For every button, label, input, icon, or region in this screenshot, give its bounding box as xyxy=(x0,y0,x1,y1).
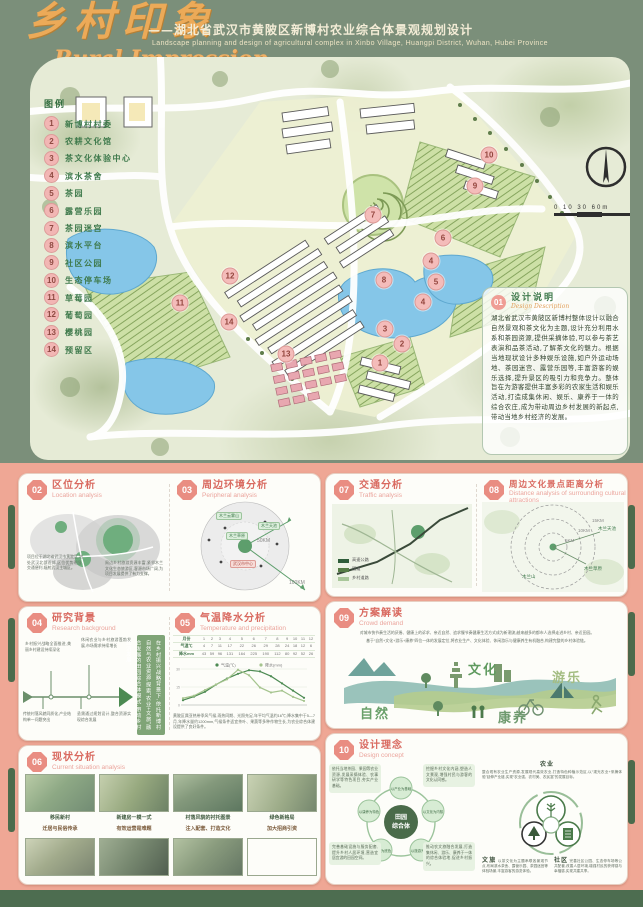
distance-header: 08 周边文化景点距离分析 Distance analysis of surro… xyxy=(484,480,627,504)
svg-text:15: 15 xyxy=(176,686,180,690)
panel-divider xyxy=(476,484,477,586)
design-description-title-en: Design Description xyxy=(511,304,569,310)
site-photo xyxy=(247,774,317,812)
photo-caption: 移民新村 xyxy=(25,815,95,821)
edge-decoration xyxy=(8,768,15,832)
map-marker: 6 xyxy=(435,230,452,247)
legend-item: 1 新博村村委 xyxy=(44,115,132,132)
svg-text:以文化为内核: 以文化为内核 xyxy=(423,809,444,814)
current-title-en: Current situation analysis xyxy=(52,765,125,772)
legend-item: 13 樱桃园 xyxy=(44,324,132,341)
legend-item-label: 滨水平台 xyxy=(65,241,103,249)
legend-item-label: 农耕文化馆 xyxy=(65,137,113,145)
poi-chip: 木兰天池 xyxy=(258,522,280,530)
current-title-cn: 现状分析 xyxy=(52,752,125,763)
site-photo xyxy=(173,838,243,876)
section-badge: 02 xyxy=(27,480,47,500)
demand-line1: 对城市快节奏生活的厌倦、健康上的诉求、亲近自然、追求慢节奏健康生活方式成为新潮流… xyxy=(346,630,608,636)
legend-item: 7 茶园迷宫 xyxy=(44,219,132,236)
legend-number-badge: 7 xyxy=(44,221,59,236)
peripheral-title-en: Peripheral analysis xyxy=(202,493,268,500)
research-title-en: Research background xyxy=(52,626,116,633)
panel-divider xyxy=(169,484,170,591)
peripheral-header: 03 周边环境分析 Peripheral analysis xyxy=(177,480,268,500)
legend-item-label: 茶园迷宫 xyxy=(65,224,103,232)
panel-divider xyxy=(169,617,170,730)
poi-chip: 木兰草原 xyxy=(226,532,248,540)
legend-item-label: 葡萄园 xyxy=(65,311,94,319)
research-item: 乡村振兴战略全面推进,美丽乡村建设持续深化 xyxy=(25,641,71,652)
traffic-legend-item: 国道 xyxy=(338,565,369,574)
edge-decoration xyxy=(628,760,635,824)
map-marker: 14 xyxy=(221,314,238,331)
legend-number-badge: 12 xyxy=(44,307,59,322)
location-title-en: Location analysis xyxy=(52,493,102,500)
research-header: 04 研究背景 Research background xyxy=(27,613,116,633)
legend-item: 11 草莓园 xyxy=(44,289,132,306)
climate-table: 月份123456789101112气温℃47111722262928241812… xyxy=(173,635,315,658)
section-badge: 05 xyxy=(175,613,195,633)
compass xyxy=(582,143,630,196)
research-item: 传统村落风貌同质化,产业结构单一问题突出 xyxy=(23,711,71,722)
concept-title-cn: 设计理念 xyxy=(359,740,404,751)
poi-chip: 木兰云雾山 xyxy=(216,512,242,520)
location-text-a: 项目位于湖北省武汉市黄陂区,地处武汉北部近郊,区位优势明显,交通便利,辐射武汉主… xyxy=(27,554,83,571)
legend-number-badge: 9 xyxy=(44,255,59,270)
section-badge: 08 xyxy=(484,480,504,500)
edge-decoration xyxy=(628,612,635,676)
panel-traffic-distance: 07 交通分析 Traffic analysis 高速公路 xyxy=(325,473,628,597)
location-title-cn: 区位分析 xyxy=(52,480,102,491)
traffic-legend-label: 高速公路 xyxy=(352,558,369,562)
svg-text:降水(mm): 降水(mm) xyxy=(265,662,283,668)
legend-number-badge: 10 xyxy=(44,273,59,288)
legend-item: 6 露营乐园 xyxy=(44,202,132,219)
ring-label: 15KM xyxy=(592,518,604,523)
legend-item: 8 滨水平台 xyxy=(44,237,132,254)
poi-label: 木兰草原 xyxy=(584,565,602,572)
trefoil-top-label: 农业 xyxy=(540,762,554,768)
site-photo xyxy=(247,838,317,876)
map-marker: 8 xyxy=(376,272,393,289)
poster: 乡村印象 ——湖北省武汉市黄陂区新博村农业综合体景观规划设计 Landscape… xyxy=(0,0,643,907)
climate-note: 黄陂区属亚热带季风气候,雨热同期、光照充足,年平均气温约16℃;降水集中于5—7… xyxy=(173,713,315,730)
section-badge: 01 xyxy=(491,295,506,310)
panel-location-peripheral: 02 区位分析 Location analysis 项目位于湖北省武汉市黄陂区,… xyxy=(18,473,321,602)
legend-number-badge: 6 xyxy=(44,203,59,218)
ring-label-far: 100KM xyxy=(289,580,305,586)
section-badge: 07 xyxy=(334,480,354,500)
edge-decoration xyxy=(8,505,15,569)
traffic-title-en: Traffic analysis xyxy=(359,493,403,500)
legend-item-label: 露营乐园 xyxy=(65,207,103,215)
photo-caption: 迁居与民俗传承 xyxy=(25,826,95,832)
panel-research-climate: 04 研究背景 Research background 乡村振兴战略全面推进,美… xyxy=(18,606,321,741)
map-legend: 图例 1 新博村村委 2 农耕文化馆 3 茶文化体验中心 xyxy=(44,101,132,358)
concept-corner-text: 完善基础设施与服务配套,提升乡村人居环境,营造宜居宜游的田园空间。 xyxy=(329,842,381,865)
section-badge: 09 xyxy=(334,608,354,628)
legend-number-badge: 13 xyxy=(44,325,59,340)
north-arrow-icon xyxy=(582,143,630,191)
research-title-cn: 研究背景 xyxy=(52,613,116,624)
map-marker: 7 xyxy=(365,207,382,224)
legend-item: 10 生态停车场 xyxy=(44,272,132,289)
location-header: 02 区位分析 Location analysis xyxy=(27,480,102,500)
legend-number-badge: 3 xyxy=(44,151,59,166)
map-marker: 5 xyxy=(428,274,445,291)
legend-item-label: 生态停车场 xyxy=(65,276,113,284)
climate-header: 05 气温降水分析 Temperature and precipitation xyxy=(175,613,286,633)
legend-number-badge: 4 xyxy=(44,168,59,183)
climate-chart: 01530气温(℃)降水(mm) xyxy=(173,661,315,711)
trefoil-left-text: 文旅 以茶文化为主题串联各景观节点,布局滨水茶舍、露营乐园、茶园迷宫等体验场景,… xyxy=(482,858,548,875)
section-badge: 10 xyxy=(334,740,354,760)
traffic-title-cn: 交通分析 xyxy=(359,480,403,491)
legend-number-badge: 5 xyxy=(44,186,59,201)
legend-item-label: 茶园 xyxy=(65,189,84,197)
demand-label-culture: 文化 xyxy=(468,664,498,677)
svg-text:30: 30 xyxy=(176,668,180,672)
design-description-title-cn: 设计说明 xyxy=(511,294,569,303)
concept-corner-text: 推动农文旅融合发展,打造集休闲、游乐、康养于一体的综合体验地,促进乡村振兴。 xyxy=(423,842,475,871)
photo-caption: 注入配套、打造文化 xyxy=(173,826,243,832)
legend-item: 14 预留区 xyxy=(44,341,132,358)
photo-caption: 新建房一模一式 xyxy=(99,815,169,821)
legend-number-badge: 1 xyxy=(44,116,59,131)
panel-concept: 10 设计理念 Design concept 田园 综合体 以产业为基础 以文化… xyxy=(325,733,628,885)
legend-number-badge: 8 xyxy=(44,238,59,253)
site-photo xyxy=(99,838,169,876)
legend-item-label: 茶文化体验中心 xyxy=(65,154,132,162)
ring-label: 5KM xyxy=(565,538,575,543)
distance-title-cn: 周边文化景点距离分析 xyxy=(509,480,627,489)
map-marker: 3 xyxy=(377,321,394,338)
map-marker: 12 xyxy=(222,268,239,285)
legend-item-label: 樱桃园 xyxy=(65,328,94,336)
legend-item: 4 滨水茶舍 xyxy=(44,167,132,184)
research-item: 亟需通过规划设计,整合资源实现综合发展 xyxy=(77,711,131,722)
design-description-box: 01 设计说明 Design Description 湖北省武汉市黄陂区新博村整… xyxy=(482,287,628,455)
photo-caption: 有效运营是难题 xyxy=(99,826,169,832)
concept-header: 10 设计理念 Design concept xyxy=(334,740,404,760)
edge-decoration xyxy=(8,618,15,682)
scale-bar: 0 10 30 60m xyxy=(554,205,630,216)
demand-header: 09 方案解读 Crowd demand xyxy=(334,608,403,628)
legend-item-label: 社区公园 xyxy=(65,259,103,267)
legend-list: 1 新博村村委 2 农耕文化馆 3 茶文化体验中心 4 xyxy=(44,115,132,358)
scale-labels: 0 10 30 60m xyxy=(554,205,630,211)
legend-item-label: 新博村村委 xyxy=(65,120,113,128)
master-plan-map: 图例 1 新博村村委 2 农耕文化馆 3 茶文化体验中心 xyxy=(30,57,630,460)
legend-item-label: 滨水茶舍 xyxy=(65,172,103,180)
trefoil-diagram xyxy=(498,790,604,856)
svg-text:0: 0 xyxy=(178,704,180,708)
trefoil-right-text: 社区 完善社区公园、生态停车场等公共配套,改善人居环境,增强村民的获得感与幸福感… xyxy=(554,858,622,875)
svg-text:以产业为基础: 以产业为基础 xyxy=(391,786,412,791)
location-map xyxy=(23,502,165,597)
demand-title-cn: 方案解读 xyxy=(359,608,403,619)
map-marker: 10 xyxy=(481,147,498,164)
legend-number-badge: 11 xyxy=(44,290,59,305)
svg-text:以康养为特色: 以康养为特色 xyxy=(359,809,380,814)
legend-item: 3 茶文化体验中心 xyxy=(44,150,132,167)
traffic-legend-label: 国道 xyxy=(352,567,360,571)
concept-title-en: Design concept xyxy=(359,753,404,760)
photo-caption: 绿色新格局 xyxy=(247,815,317,821)
edge-decoration xyxy=(628,505,635,569)
section-badge: 04 xyxy=(27,613,47,633)
map-marker: 4 xyxy=(415,294,432,311)
legend-swatch xyxy=(338,577,349,581)
site-photo xyxy=(99,774,169,812)
map-marker: 2 xyxy=(394,336,411,353)
distance-map: 5KM 10KM 15KM 木兰天池 木兰草原 木兰山 xyxy=(482,502,624,592)
ring-label-near: 50KM xyxy=(257,538,270,544)
building-icon xyxy=(563,828,573,840)
map-marker: 13 xyxy=(278,346,295,363)
site-photo xyxy=(173,774,243,812)
legend-title: 图例 xyxy=(44,101,132,110)
demand-line2: 基于“自然+文化+游乐+康养”四位一体的发展定位,将农业生产、文化体验、休闲游乐… xyxy=(346,638,608,644)
poi-label: 木兰天池 xyxy=(598,525,616,532)
legend-item: 5 茶园 xyxy=(44,185,132,202)
photo-caption: 村落风貌的衬托图景 xyxy=(173,815,243,821)
legend-item-label: 预留区 xyxy=(65,346,94,354)
pagoda-icon xyxy=(450,662,462,688)
map-marker: 1 xyxy=(372,355,389,372)
photo-caption: 加大招商引资 xyxy=(247,826,317,832)
traffic-legend: 高速公路 国道 乡村道路 xyxy=(338,556,369,583)
scale-bar-graphic xyxy=(554,213,630,216)
map-marker: 4 xyxy=(423,253,440,270)
legend-number-badge: 2 xyxy=(44,134,59,149)
section-badge: 06 xyxy=(27,752,47,772)
subtitle-cn: ——湖北省武汉市黄陂区新博村农业综合体景观规划设计 xyxy=(148,24,473,36)
peripheral-title-cn: 周边环境分析 xyxy=(202,480,268,491)
demand-title-en: Crowd demand xyxy=(359,621,403,628)
peripheral-map: 50KM 100KM xyxy=(173,500,317,598)
traffic-legend-label: 乡村道路 xyxy=(352,576,369,580)
legend-item: 2 农耕文化馆 xyxy=(44,132,132,149)
poi-label: 木兰山 xyxy=(522,573,536,580)
climate-title-en: Temperature and precipitation xyxy=(200,626,286,633)
concept-corner-text: 依托当地茶园、果园等农业资源,发展采摘体验、农事研学等特色项目,夯实产业基础。 xyxy=(329,764,381,793)
legend-swatch xyxy=(338,559,349,563)
legend-item-label: 草莓园 xyxy=(65,294,94,302)
concept-corner-text: 挖掘乡村文化内涵,塑造人文景观,增强村民与游客的文化认同感。 xyxy=(423,764,475,787)
concept-center-line1: 田园 xyxy=(395,813,407,821)
climate-title-cn: 气温降水分析 xyxy=(200,613,286,624)
legend-item: 12 葡萄园 xyxy=(44,306,132,323)
traffic-legend-item: 高速公路 xyxy=(338,556,369,565)
concept-center-line2: 综合体 xyxy=(392,822,411,830)
demand-label-wellness: 康养 xyxy=(498,712,528,725)
panel-current: 06 现状分析 Current situation analysis 移民新村 … xyxy=(18,745,321,885)
legend-swatch xyxy=(338,568,349,572)
design-description-header: 01 设计说明 Design Description xyxy=(491,294,619,310)
demand-label-play: 游乐 xyxy=(552,672,582,685)
ring-label: 10KM xyxy=(578,528,590,533)
footer-bar xyxy=(0,890,643,907)
design-description-text: 湖北省武汉市黄陂区新博村整体设计以融合自然景观和茶文化为主题,设计充分利用水系和… xyxy=(491,314,619,423)
research-sidebar: 在乡村振兴战略背景下,依托新博村自然与农业资源,探索“农业+文旅”融合发展的田园… xyxy=(137,635,165,735)
site-photo xyxy=(25,838,95,876)
location-text-b: 周边乡村旅游资源丰富,紧邻木兰文化生态旅游区,客源市场广阔,为项目发展提供了有力… xyxy=(105,560,163,577)
mountain-icon xyxy=(348,658,396,676)
legend-number-badge: 14 xyxy=(44,342,59,357)
map-marker: 11 xyxy=(172,295,189,312)
traffic-header: 07 交通分析 Traffic analysis xyxy=(334,480,403,500)
trefoil-top-text: 整合现有农业生产资源,发展现代高效农业,打造特色种植示范区,以“观光农业+采摘体… xyxy=(482,770,622,780)
svg-text:气温(℃): 气温(℃) xyxy=(221,662,236,668)
section-badge: 03 xyxy=(177,480,197,500)
poi-chip-city: 武汉市中心 xyxy=(230,560,256,568)
legend-item: 9 社区公园 xyxy=(44,254,132,271)
site-photo xyxy=(25,774,95,812)
panel-demand: 09 方案解读 Crowd demand 对城市快节奏生活的厌倦、健康上的诉求、… xyxy=(325,601,628,729)
current-header: 06 现状分析 Current situation analysis xyxy=(27,752,125,772)
map-marker: 9 xyxy=(467,178,484,195)
traffic-legend-item: 乡村道路 xyxy=(338,574,369,583)
demand-label-nature: 自然 xyxy=(360,708,390,721)
